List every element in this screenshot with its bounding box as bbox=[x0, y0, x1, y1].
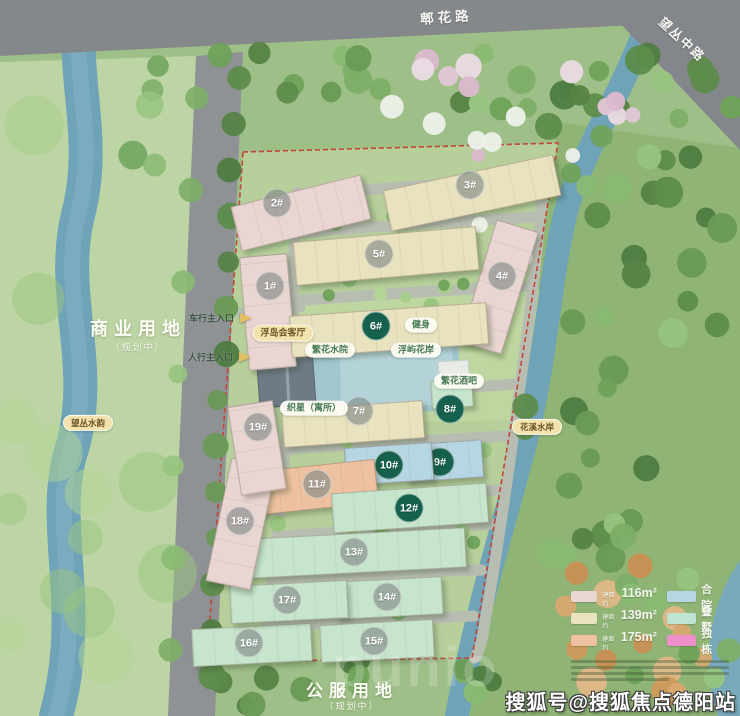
site-plan-map: 1#2#3#4#5#6#7#8#9#10#11#12#13#14#15#16#1… bbox=[0, 0, 740, 716]
legend-type-item: 合院 bbox=[667, 590, 740, 603]
legend-size-text: 建面约116m² bbox=[602, 586, 656, 608]
commercial-area-title: 商业用地 bbox=[90, 315, 186, 341]
legend-type-column: 合院叠墅独栋 bbox=[667, 590, 740, 647]
legend-type-swatch bbox=[667, 613, 696, 624]
legend-size-prefix: 建面约 bbox=[602, 612, 619, 630]
legend-type-swatch bbox=[667, 635, 696, 646]
legend-size-prefix: 建面约 bbox=[602, 634, 619, 652]
commercial-area-subtitle: （规划中） bbox=[110, 341, 165, 354]
legend-size-text: 建面约139m² bbox=[602, 608, 657, 630]
public-area-subtitle: （规划中） bbox=[324, 700, 379, 713]
legend: 建面约116m²建面约139m²建面约175m² 合院叠墅独栋 bbox=[571, 590, 740, 647]
legend-type-swatch bbox=[667, 591, 696, 602]
center-watermark: punio bbox=[332, 634, 499, 699]
legend-disclaimer-lines bbox=[571, 660, 729, 684]
legend-size-value: 175m² bbox=[621, 630, 657, 644]
legend-type-item: 叠墅 bbox=[667, 612, 740, 625]
legend-size-value: 139m² bbox=[621, 608, 657, 622]
bottom-right-watermark: 搜狐号@搜狐焦点德阳站 bbox=[505, 686, 736, 715]
top-road-label: 郫花路 bbox=[419, 4, 473, 28]
legend-size-value: 116m² bbox=[621, 586, 656, 600]
legend-type-item: 独栋 bbox=[667, 634, 740, 647]
legend-size-swatch bbox=[571, 635, 597, 646]
pavilion bbox=[438, 360, 470, 384]
legend-size-swatch bbox=[571, 613, 597, 624]
legend-size-item: 建面约116m² bbox=[571, 590, 657, 603]
legend-type-label: 独栋 bbox=[701, 625, 740, 657]
legend-size-prefix: 建面约 bbox=[602, 590, 619, 608]
legend-size-swatch bbox=[571, 591, 597, 602]
legend-size-text: 建面约175m² bbox=[602, 630, 657, 652]
legend-size-column: 建面约116m²建面约139m²建面约175m² bbox=[571, 590, 657, 647]
water-court-inner bbox=[340, 342, 454, 409]
legend-size-item: 建面约175m² bbox=[571, 634, 657, 647]
legend-size-item: 建面约139m² bbox=[571, 612, 657, 625]
